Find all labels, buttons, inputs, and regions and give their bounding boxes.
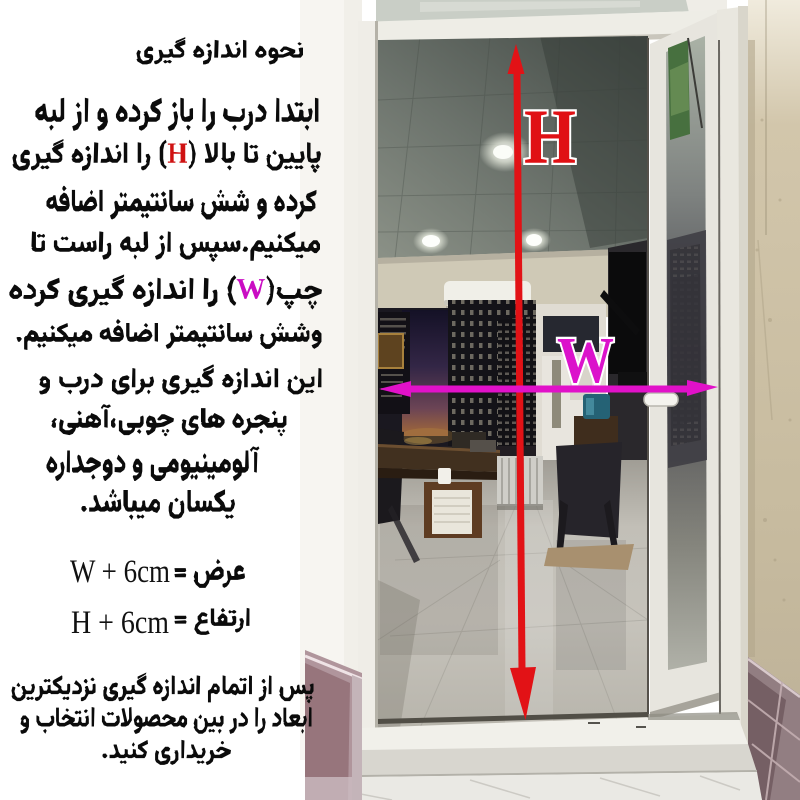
svg-text:W: W	[557, 324, 614, 397]
svg-text:W + 6cm: W + 6cm	[70, 554, 170, 590]
svg-text:H + 6cm: H + 6cm	[71, 605, 169, 641]
svg-text:H: H	[524, 93, 576, 180]
